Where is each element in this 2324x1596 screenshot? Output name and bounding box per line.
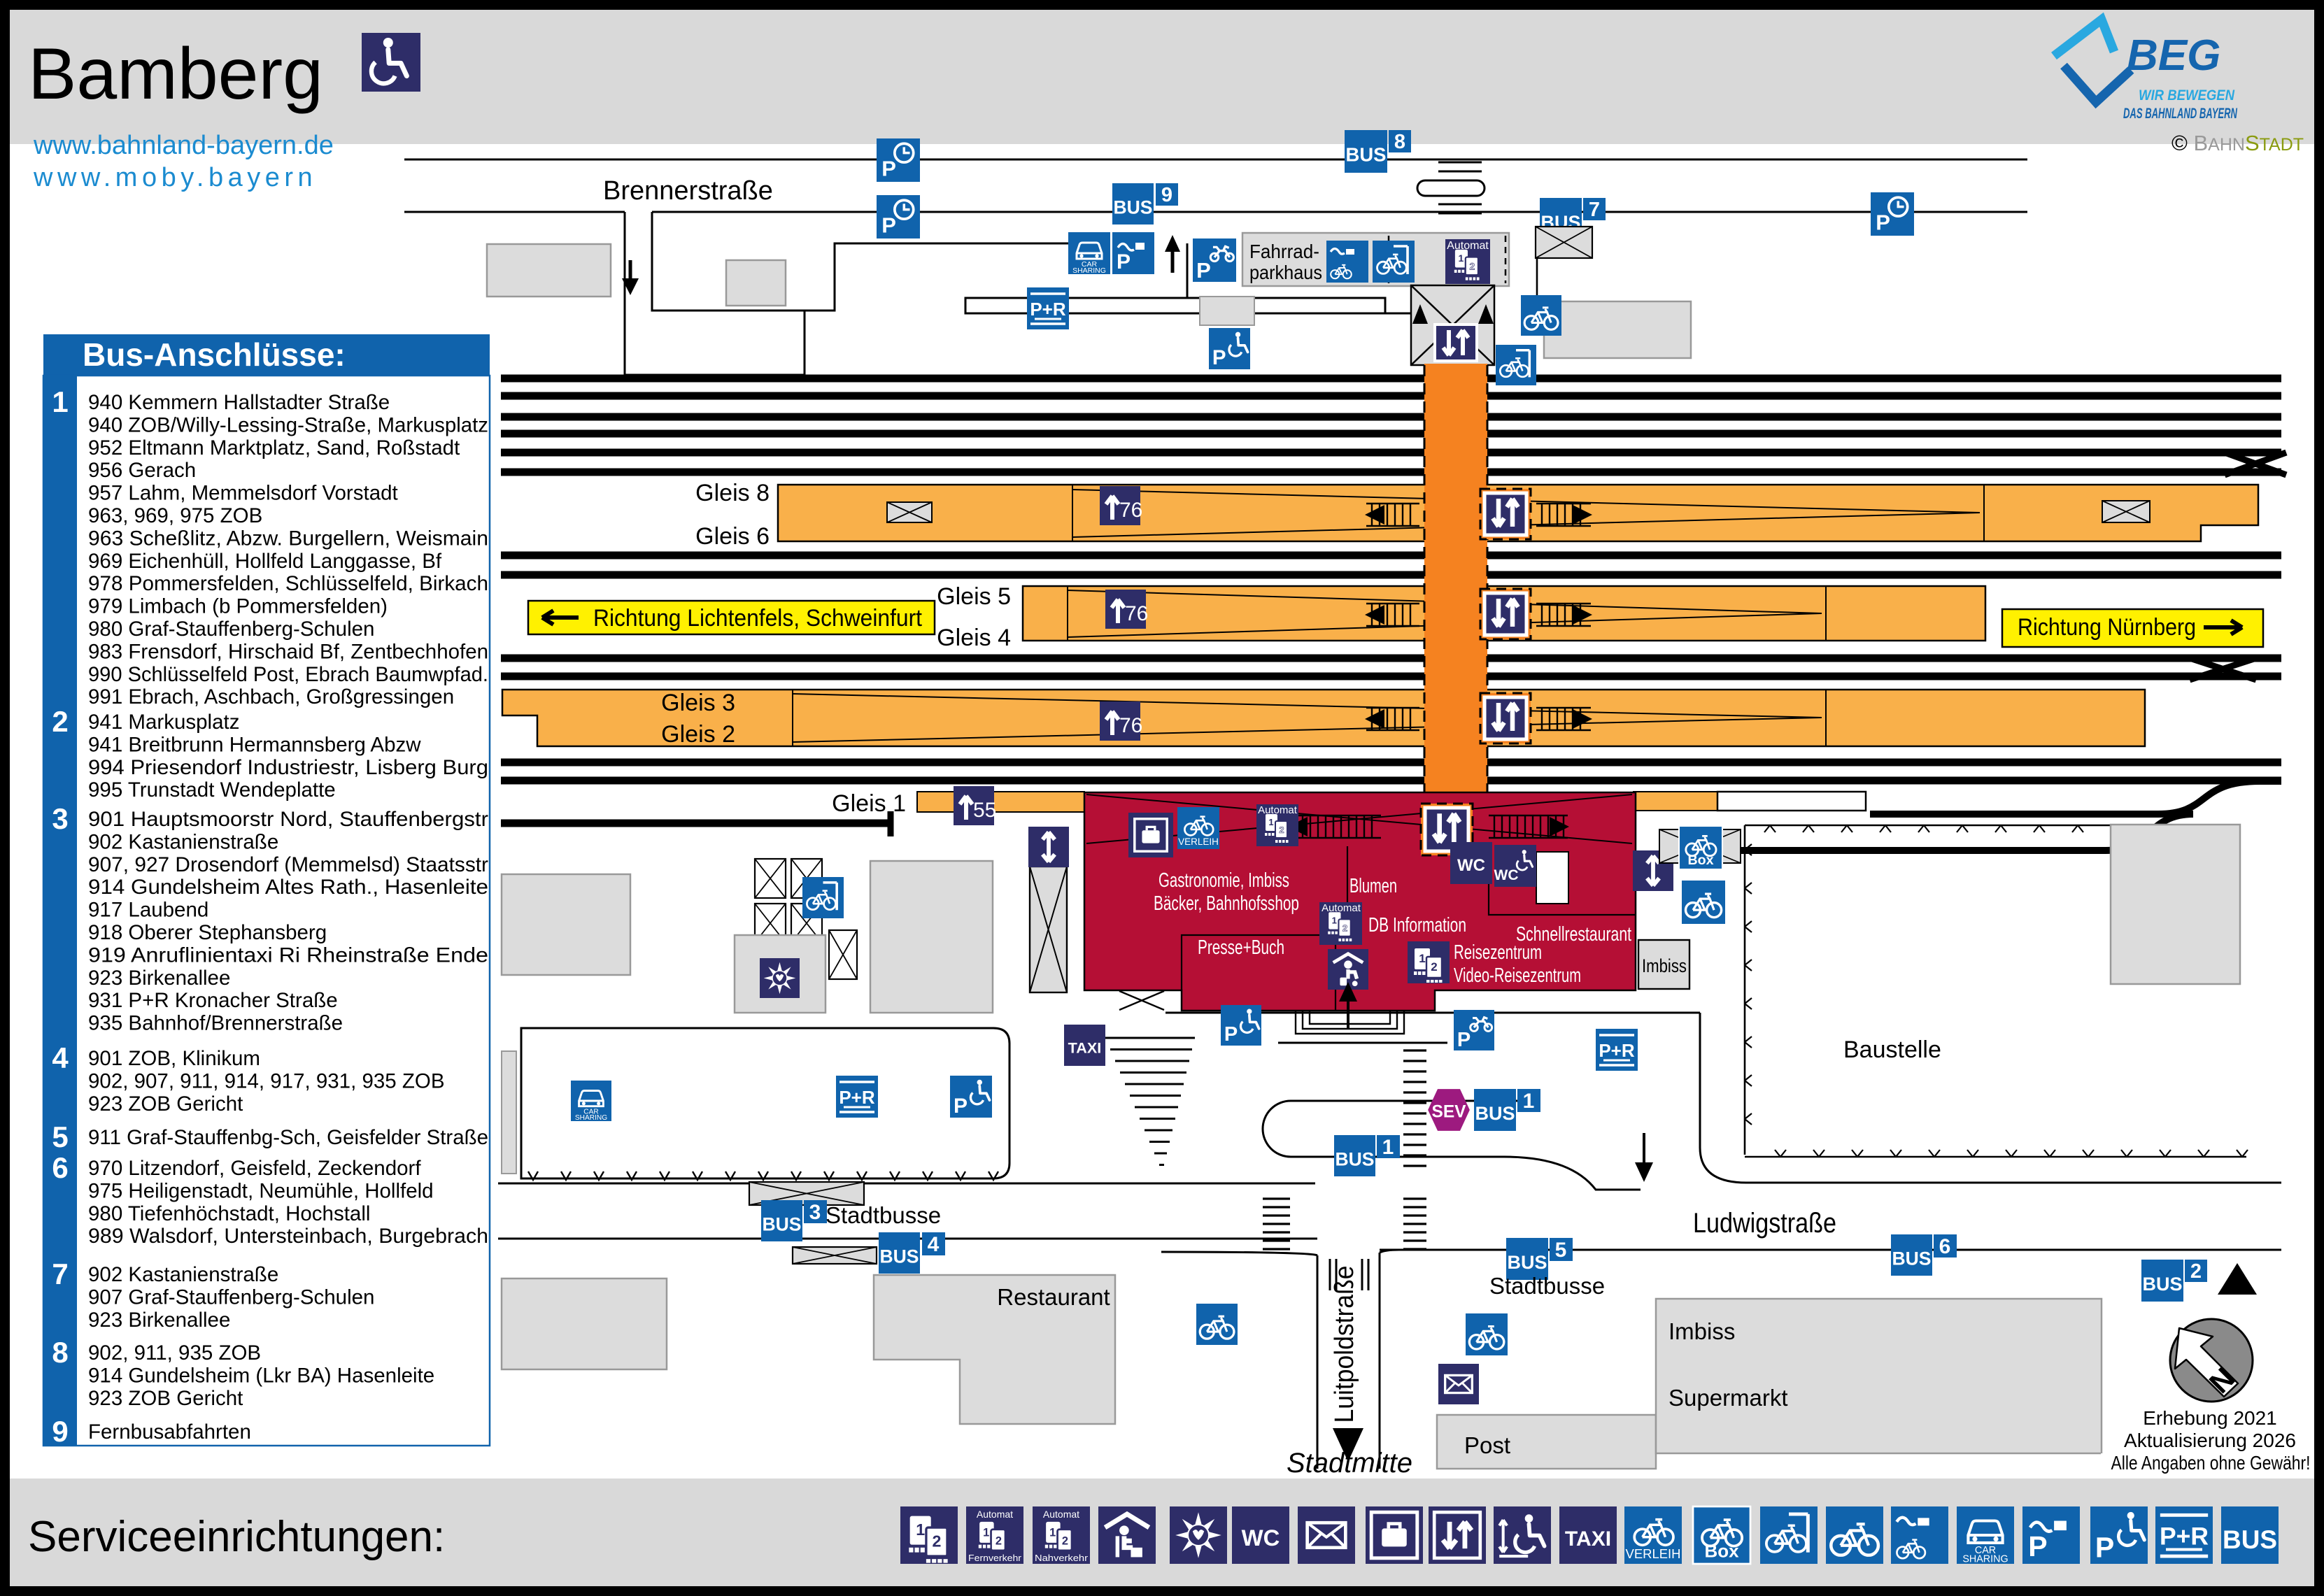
svg-text:DB Information: DB Information — [1368, 914, 1466, 936]
svg-text:www.moby.bayern: www.moby.bayern — [33, 163, 317, 192]
svg-text:6: 6 — [52, 1151, 68, 1184]
svg-text:Video-Reisezentrum: Video-Reisezentrum — [1454, 964, 1581, 987]
svg-text:902 Kastanienstraße: 902 Kastanienstraße — [88, 1263, 278, 1286]
svg-text:76: 76 — [1119, 714, 1142, 737]
svg-text:Supermarkt: Supermarkt — [1668, 1385, 1788, 1411]
svg-text:Bamberg: Bamberg — [28, 34, 323, 115]
svg-text:Gleis 3: Gleis 3 — [661, 690, 735, 716]
svg-text:969 Eichenhüll, Hollfeld Langg: 969 Eichenhüll, Hollfeld Langgasse, Bf — [88, 550, 442, 573]
svg-text:Richtung Lichtenfels, Schweinf: Richtung Lichtenfels, Schweinfurt — [593, 605, 923, 632]
svg-text:9: 9 — [52, 1415, 68, 1448]
svg-text:990 Schlüsselfeld Post, Ebrach: 990 Schlüsselfeld Post, Ebrach Baumwpfad… — [88, 663, 488, 686]
svg-text:Post: Post — [1464, 1432, 1510, 1458]
svg-text:919 Anruflinientaxi Ri Rheinst: 919 Anruflinientaxi Ri Rheinstraße Ende — [88, 943, 488, 967]
svg-text:902, 907, 911, 914, 917, 931,: 902, 907, 911, 914, 917, 931, 935 ZOB — [88, 1069, 445, 1092]
svg-text:WIR BEWEGEN: WIR BEWEGEN — [2139, 87, 2235, 104]
svg-text:7: 7 — [1589, 199, 1600, 221]
svg-text:1: 1 — [52, 385, 68, 418]
svg-text:Stadtbusse: Stadtbusse — [1489, 1273, 1605, 1299]
svg-text:Richtung Nürnberg: Richtung Nürnberg — [2018, 614, 2196, 641]
svg-text:Presse+Buch: Presse+Buch — [1198, 936, 1284, 959]
svg-text:952 Eltmann Marktplatz, Sand,: 952 Eltmann Marktplatz, Sand, Roßstadt — [88, 436, 460, 459]
svg-text:923 ZOB Gericht: 923 ZOB Gericht — [88, 1387, 243, 1410]
svg-text:970 Litzendorf, Geisfeld, Zeck: 970 Litzendorf, Geisfeld, Zeckendorf — [88, 1157, 421, 1180]
svg-text:2: 2 — [2190, 1260, 2202, 1283]
svg-text:Automat: Automat — [977, 1509, 1013, 1520]
svg-text:BEG: BEG — [2127, 31, 2220, 80]
svg-text:5: 5 — [52, 1120, 68, 1153]
svg-text:4: 4 — [52, 1041, 69, 1074]
svg-text:Bäcker, Bahnhofsshop: Bäcker, Bahnhofsshop — [1154, 892, 1299, 915]
svg-text:Imbiss: Imbiss — [1668, 1318, 1735, 1344]
svg-text:Gleis 4: Gleis 4 — [937, 625, 1011, 651]
svg-text:Gleis 6: Gleis 6 — [695, 523, 770, 550]
svg-text:Automat: Automat — [1447, 240, 1489, 252]
svg-text:www.bahnland-bayern.de: www.bahnland-bayern.de — [33, 131, 334, 160]
svg-text:991 Ebrach, Aschbach, Großgres: 991 Ebrach, Aschbach, Großgressingen — [88, 685, 454, 708]
svg-text:957 Lahm, Memmelsdorf Vorstadt: 957 Lahm, Memmelsdorf Vorstadt — [88, 482, 398, 505]
svg-text:902, 911, 935 ZOB: 902, 911, 935 ZOB — [88, 1341, 261, 1365]
svg-text:Automat: Automat — [1258, 804, 1298, 816]
svg-text:Erhebung 2021: Erhebung 2021 — [2143, 1407, 2277, 1429]
svg-text:980 Tiefenhöchstadt, Hochstall: 980 Tiefenhöchstadt, Hochstall — [88, 1202, 370, 1225]
svg-text:963 Scheßlitz, Abzw. Burgeller: 963 Scheßlitz, Abzw. Burgellern, Weismai… — [88, 527, 488, 550]
svg-text:76: 76 — [1125, 602, 1148, 625]
svg-text:2: 2 — [52, 705, 68, 738]
svg-text:Brennerstraße: Brennerstraße — [603, 176, 773, 206]
svg-text:6: 6 — [1939, 1235, 1951, 1258]
svg-text:901 ZOB, Klinikum: 901 ZOB, Klinikum — [88, 1047, 260, 1070]
svg-text:914 Gundelsheim (Lkr BA) Hasen: 914 Gundelsheim (Lkr BA) Hasenleite — [88, 1364, 434, 1387]
svg-text:© BAHNSTADT: © BAHNSTADT — [2171, 131, 2304, 155]
svg-text:989 Walsdorf, Untersteinbach,: 989 Walsdorf, Untersteinbach, Burgebrach — [88, 1225, 488, 1248]
svg-text:941 Breitbrunn Hermannsberg Ab: 941 Breitbrunn Hermannsberg Abzw — [88, 733, 421, 756]
svg-text:918 Oberer Stephansberg: 918 Oberer Stephansberg — [88, 921, 327, 944]
svg-text:Gleis 2: Gleis 2 — [661, 721, 735, 748]
svg-text:980 Graf-Stauffenberg-Schulen: 980 Graf-Stauffenberg-Schulen — [88, 618, 374, 641]
svg-text:Blumen: Blumen — [1349, 875, 1397, 897]
svg-text:979 Limbach (b Pommersfelden): 979 Limbach (b Pommersfelden) — [88, 595, 388, 618]
svg-text:940 ZOB/Willy-Lessing-Straße,: 940 ZOB/Willy-Lessing-Straße, Markusplat… — [88, 413, 488, 436]
svg-text:923 ZOB Gericht: 923 ZOB Gericht — [88, 1092, 243, 1116]
svg-text:5: 5 — [1555, 1239, 1567, 1262]
svg-text:Alle Angaben ohne Gewähr!: Alle Angaben ohne Gewähr! — [2111, 1452, 2311, 1474]
svg-text:Gleis 1: Gleis 1 — [832, 790, 906, 817]
svg-text:Reisezentrum: Reisezentrum — [1454, 941, 1542, 964]
svg-text:Ludwigstraße: Ludwigstraße — [1693, 1208, 1836, 1239]
svg-text:Automat: Automat — [1322, 902, 1361, 914]
svg-text:Restaurant: Restaurant — [997, 1284, 1110, 1310]
svg-text:3: 3 — [809, 1201, 821, 1224]
svg-text:Baustelle: Baustelle — [1843, 1036, 1941, 1063]
svg-text:8: 8 — [1394, 131, 1405, 153]
svg-text:Stadtmitte: Stadtmitte — [1287, 1448, 1412, 1479]
svg-text:Luitpoldstraße: Luitpoldstraße — [1330, 1266, 1359, 1423]
svg-text:Gleis 5: Gleis 5 — [937, 583, 1011, 610]
svg-text:1: 1 — [1523, 1090, 1535, 1113]
svg-text:4: 4 — [928, 1233, 940, 1256]
svg-text:978 Pommersfelden, Schlüsselfe: 978 Pommersfelden, Schlüsselfeld, Birkac… — [88, 572, 488, 595]
svg-text:Stadtbusse: Stadtbusse — [826, 1202, 941, 1228]
svg-text:956 Gerach: 956 Gerach — [88, 459, 196, 482]
svg-text:931 P+R Kronacher Straße: 931 P+R Kronacher Straße — [88, 989, 338, 1012]
svg-text:901 Hauptsmoorstr Nord, Stauff: 901 Hauptsmoorstr Nord, Stauffenbergstr — [88, 808, 488, 831]
svg-text:935 Bahnhof/Brennerstraße: 935 Bahnhof/Brennerstraße — [88, 1012, 343, 1035]
svg-text:Bus-Anschlüsse:: Bus-Anschlüsse: — [83, 336, 346, 373]
svg-text:994 Priesendorf Industriestr,: 994 Priesendorf Industriestr, Lisberg Bu… — [88, 756, 488, 779]
svg-text:Gastronomie, Imbiss: Gastronomie, Imbiss — [1159, 869, 1289, 892]
svg-text:983 Frensdorf, Hirschaid Bf, Z: 983 Frensdorf, Hirschaid Bf, Zentbechhof… — [88, 640, 488, 663]
svg-text:923 Birkenallee: 923 Birkenallee — [88, 967, 230, 990]
svg-text:3: 3 — [52, 802, 68, 835]
svg-text:940 Kemmern Hallstadter Straße: 940 Kemmern Hallstadter Straße — [88, 391, 390, 414]
svg-text:76: 76 — [1119, 499, 1142, 522]
svg-text:Gleis 8: Gleis 8 — [695, 480, 770, 506]
svg-text:8: 8 — [52, 1336, 68, 1369]
svg-text:Imbiss: Imbiss — [1642, 955, 1687, 976]
svg-text:1: 1 — [1382, 1136, 1394, 1159]
svg-text:907 Graf-Stauffenberg-Schulen: 907 Graf-Stauffenberg-Schulen — [88, 1285, 374, 1309]
svg-text:Serviceeinrichtungen:: Serviceeinrichtungen: — [28, 1513, 445, 1561]
svg-text:Automat: Automat — [1043, 1509, 1079, 1520]
svg-text:941 Markusplatz: 941 Markusplatz — [88, 711, 239, 734]
svg-text:902 Kastanienstraße: 902 Kastanienstraße — [88, 830, 278, 853]
svg-text:7: 7 — [52, 1257, 68, 1290]
svg-text:Fernverkehr: Fernverkehr — [968, 1553, 1022, 1563]
svg-text:Fahrrad-: Fahrrad- — [1249, 241, 1319, 262]
svg-text:Nahverkehr: Nahverkehr — [1035, 1553, 1089, 1563]
svg-text:55: 55 — [973, 799, 996, 822]
svg-text:9: 9 — [1161, 184, 1172, 206]
svg-text:963, 969, 975 ZOB: 963, 969, 975 ZOB — [88, 504, 262, 527]
svg-text:Fernbusabfahrten: Fernbusabfahrten — [88, 1420, 251, 1444]
svg-text:975 Heiligenstadt, Neumühle, H: 975 Heiligenstadt, Neumühle, Hollfeld — [88, 1179, 434, 1202]
svg-text:911 Graf-Stauffenbg-Sch, Geisf: 911 Graf-Stauffenbg-Sch, Geisfelder Stra… — [88, 1126, 488, 1149]
svg-text:parkhaus: parkhaus — [1249, 262, 1322, 283]
svg-text:995 Trunstadt Wendeplatte: 995 Trunstadt Wendeplatte — [88, 778, 336, 801]
svg-text:923 Birkenallee: 923 Birkenallee — [88, 1309, 230, 1332]
svg-text:Aktualisierung 2026: Aktualisierung 2026 — [2124, 1430, 2296, 1451]
svg-text:917 Laubend: 917 Laubend — [88, 899, 208, 922]
svg-text:907, 927 Drosendorf (Memmelsd): 907, 927 Drosendorf (Memmelsd) Staatsstr — [88, 853, 488, 876]
svg-text:DAS BAHNLAND BAYERN: DAS BAHNLAND BAYERN — [2123, 106, 2238, 122]
svg-text:914 Gundelsheim Altes Rath., H: 914 Gundelsheim Altes Rath., Hasenleite — [88, 876, 488, 899]
